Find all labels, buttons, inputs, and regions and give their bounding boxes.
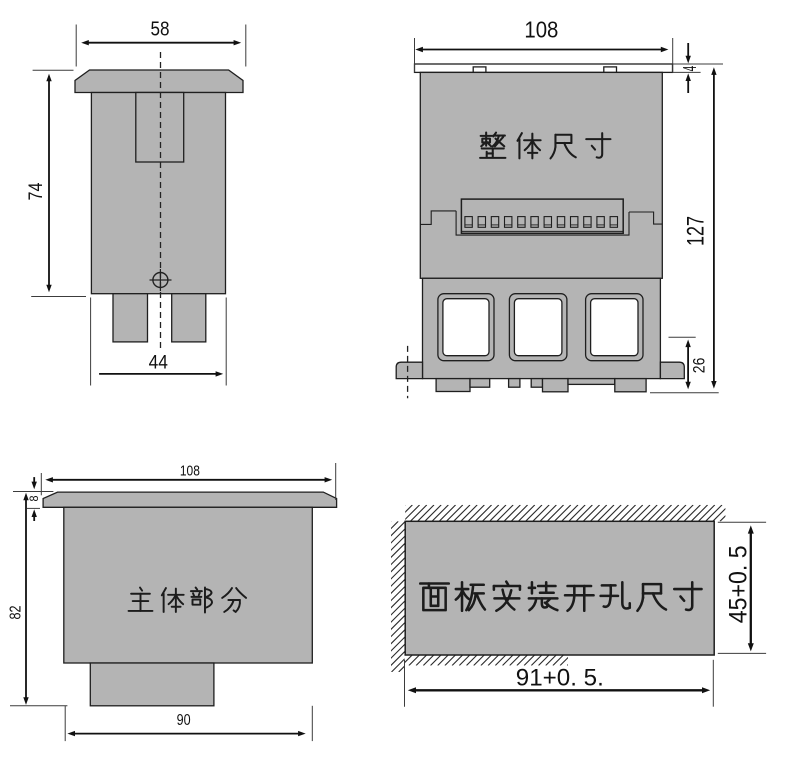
svg-text:58: 58 [151,19,170,41]
svg-text:108: 108 [524,17,558,43]
svg-text:45+0. 5: 45+0. 5 [725,545,753,623]
svg-text:8: 8 [27,495,41,501]
svg-text:127: 127 [683,216,710,246]
svg-text:26: 26 [689,358,708,374]
svg-text:108: 108 [180,463,200,480]
svg-text:44: 44 [149,352,168,374]
svg-text:82: 82 [7,606,24,620]
svg-text:91+0. 5.: 91+0. 5. [516,664,604,691]
svg-text:90: 90 [177,712,191,729]
svg-text:4: 4 [680,66,700,72]
svg-text:74: 74 [25,182,47,200]
